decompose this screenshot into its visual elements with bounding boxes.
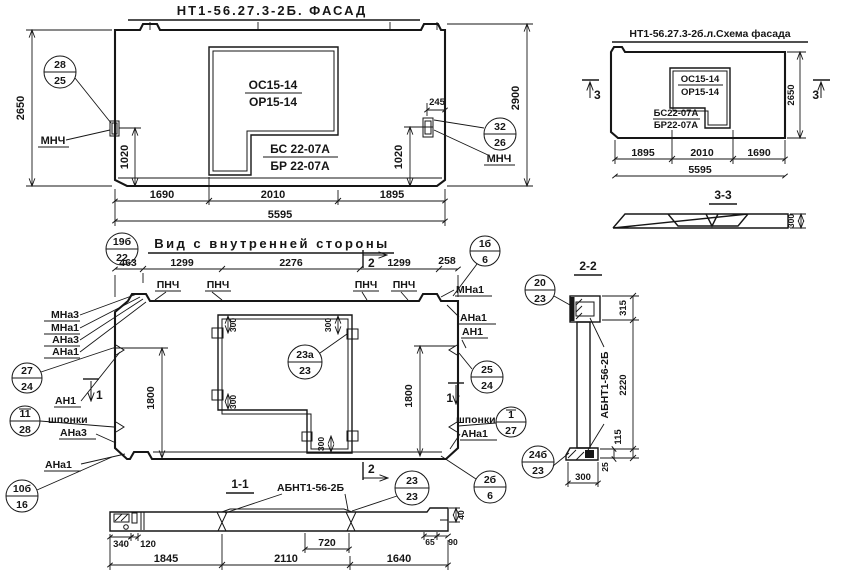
label-an1-right: АН1 (462, 326, 483, 338)
dim-300-foot: 300 (575, 472, 591, 483)
pnch-label-2: ПНЧ (207, 279, 230, 291)
section-3-3-title: 3-3 (714, 188, 732, 202)
drawing-sheet: НТ1-56.27.3-2Б. ФАСАД ОС15-14 ОР15-14 БС… (0, 0, 852, 581)
schema-window-mark2: ОР15-14 (681, 87, 720, 98)
section-2-2-title: 2-2 (579, 259, 597, 273)
facade-title: НТ1-56.27.3-2Б. ФАСАД (177, 3, 367, 18)
schema-sill-mark2: БР22-07А (654, 120, 698, 131)
callout-27-24-bot: 24 (21, 381, 33, 393)
callout-2b-6-top: 2б (484, 474, 497, 486)
dim-2110: 2110 (274, 553, 298, 565)
facade-dim-2900: 2900 (510, 86, 522, 110)
callout-20-23-bot: 23 (534, 293, 546, 305)
label-mna1-left: МНа1 (51, 322, 79, 334)
callout-23a-23-top: 23а (296, 349, 314, 361)
schema-dim-2650: 2650 (786, 84, 797, 105)
section-3-3-dim-300: 300 (786, 214, 796, 228)
pnch-label-1: ПНЧ (157, 279, 180, 291)
dim-115: 115 (613, 429, 624, 445)
dim-2220: 2220 (618, 374, 629, 395)
callout-25-24-top: 25 (481, 364, 493, 376)
facade-window-mark: ОС15-14 (249, 78, 298, 92)
callout-23-23-bot: 23 (406, 491, 418, 503)
inner-dim-1800-left: 1800 (145, 386, 157, 410)
dim-40: 40 (456, 510, 466, 520)
callout-32-26-bot: 26 (494, 137, 506, 149)
callout-1-27-top: 1 (508, 409, 514, 421)
inner-mark1-left: 1 (96, 388, 103, 402)
callout-24b-23-bot: 23 (532, 465, 544, 477)
facade-dim-2010: 2010 (261, 189, 285, 201)
schema-sill-mark: БС22-07А (654, 108, 699, 119)
schema-mark3-left: 3 (594, 88, 601, 102)
callout-11-28-bot: 28 (19, 424, 31, 436)
callout-1b-6-top: 1б (479, 238, 492, 250)
facade-sill-mark2: БР 22-07А (270, 159, 330, 173)
inner-dim-300-b: 300 (323, 318, 333, 332)
facade-dim-245: 245 (429, 97, 446, 108)
callout-1-27: 1 27 (496, 407, 526, 437)
facade-dim-2650: 2650 (15, 96, 27, 120)
facade-dim-1690: 1690 (150, 189, 174, 201)
dim-1845: 1845 (154, 553, 178, 565)
facade-sill-mark: БС 22-07А (270, 142, 330, 156)
callout-23a-23-bot: 23 (299, 365, 311, 377)
technical-drawing: НТ1-56.27.3-2Б. ФАСАД ОС15-14 ОР15-14 БС… (0, 0, 852, 581)
inner-dim-300-d: 300 (316, 437, 326, 451)
facade-window-mark2: ОР15-14 (249, 95, 297, 109)
inner-dim-1299b: 1299 (387, 257, 411, 269)
callout-32-26-top: 32 (494, 121, 506, 133)
pnch-label-4: ПНЧ (393, 279, 416, 291)
callout-28-25-bot: 25 (54, 75, 66, 87)
label-ana1-left2: АНа1 (45, 459, 72, 471)
callout-1b-6-bot: 6 (482, 254, 488, 266)
inner-title: Вид с внутренней стороны (154, 236, 390, 251)
inner-dim-2276: 2276 (279, 257, 303, 269)
label-ana1-right2: АНа1 (461, 428, 488, 440)
dim-720: 720 (318, 537, 336, 549)
schema-window-mark: ОС15-14 (681, 74, 720, 85)
inner-mark2-top: 2 (368, 256, 375, 270)
callout-20-23-top: 20 (534, 277, 546, 289)
callout-25-24-bot: 24 (481, 380, 493, 392)
inner-dim-258: 258 (438, 255, 456, 267)
schema-dim-2010: 2010 (690, 147, 714, 159)
inner-dim-1299a: 1299 (170, 257, 194, 269)
inner-dim-1800-right: 1800 (403, 384, 415, 408)
pnch-label-3: ПНЧ (355, 279, 378, 291)
inner-mark2-bottom: 2 (368, 462, 375, 476)
label-ana1-left: АНа1 (52, 346, 79, 358)
inner-dim-463: 463 (119, 257, 137, 269)
dim-315: 315 (618, 299, 629, 316)
inner-dim-300-c: 300 (228, 395, 238, 409)
label-an1-left: АН1 (55, 395, 76, 407)
facade-dim-1020-left: 1020 (119, 145, 131, 169)
schema-dim-5595: 5595 (688, 164, 712, 176)
inner-dim-300-a: 300 (228, 318, 238, 332)
callout-2b-6-bot: 6 (487, 490, 493, 502)
callout-1-27-bot: 27 (505, 425, 517, 437)
dim-120: 120 (140, 539, 156, 550)
callout-24b-23-top: 24б (529, 449, 548, 461)
paper-background (0, 0, 852, 581)
callout-23-23-top: 23 (406, 475, 418, 487)
label-ana3-left: АНа3 (52, 334, 79, 346)
inner-mark1-right: 1 (446, 391, 453, 405)
label-mna3: МНа3 (51, 309, 79, 321)
section-2-2-label: АБНТ1-56-2Б (599, 351, 611, 418)
schema-mark3-right: 3 (812, 88, 819, 102)
section-1-1-label: АБНТ1-56-2Б (277, 482, 344, 494)
dim-1640: 1640 (387, 553, 411, 565)
callout-28-25-top: 28 (54, 59, 66, 71)
facade-mnch-left: МНЧ (41, 135, 66, 147)
callout-27-24-top: 27 (21, 365, 33, 377)
label-ana3-left2: АНа3 (60, 427, 87, 439)
callout-10b-16-top: 10б (13, 483, 32, 495)
dim-25: 25 (600, 462, 610, 472)
label-ana1-right: АНа1 (460, 312, 487, 324)
schema-title: НТ1-56.27.3-2б.л.Схема фасада (629, 28, 790, 40)
dim-65: 65 (425, 537, 435, 547)
facade-dim-5595: 5595 (268, 209, 292, 221)
facade-dim-1020-right: 1020 (393, 145, 405, 169)
dim-340: 340 (113, 539, 129, 550)
schema-dim-1895: 1895 (631, 147, 655, 159)
facade-dim-1895: 1895 (380, 189, 404, 201)
section-1-1-title: 1-1 (231, 477, 249, 491)
callout-11-28-top: 11 (19, 408, 30, 420)
callout-10b-16-bot: 16 (16, 499, 28, 511)
callout-19b-22-top: 19б (113, 236, 132, 248)
schema-dim-1690: 1690 (747, 147, 771, 159)
dim-90: 90 (448, 537, 458, 547)
callout-11-28: 11 28 (10, 406, 40, 436)
facade-mnch-right: МНЧ (487, 153, 512, 165)
